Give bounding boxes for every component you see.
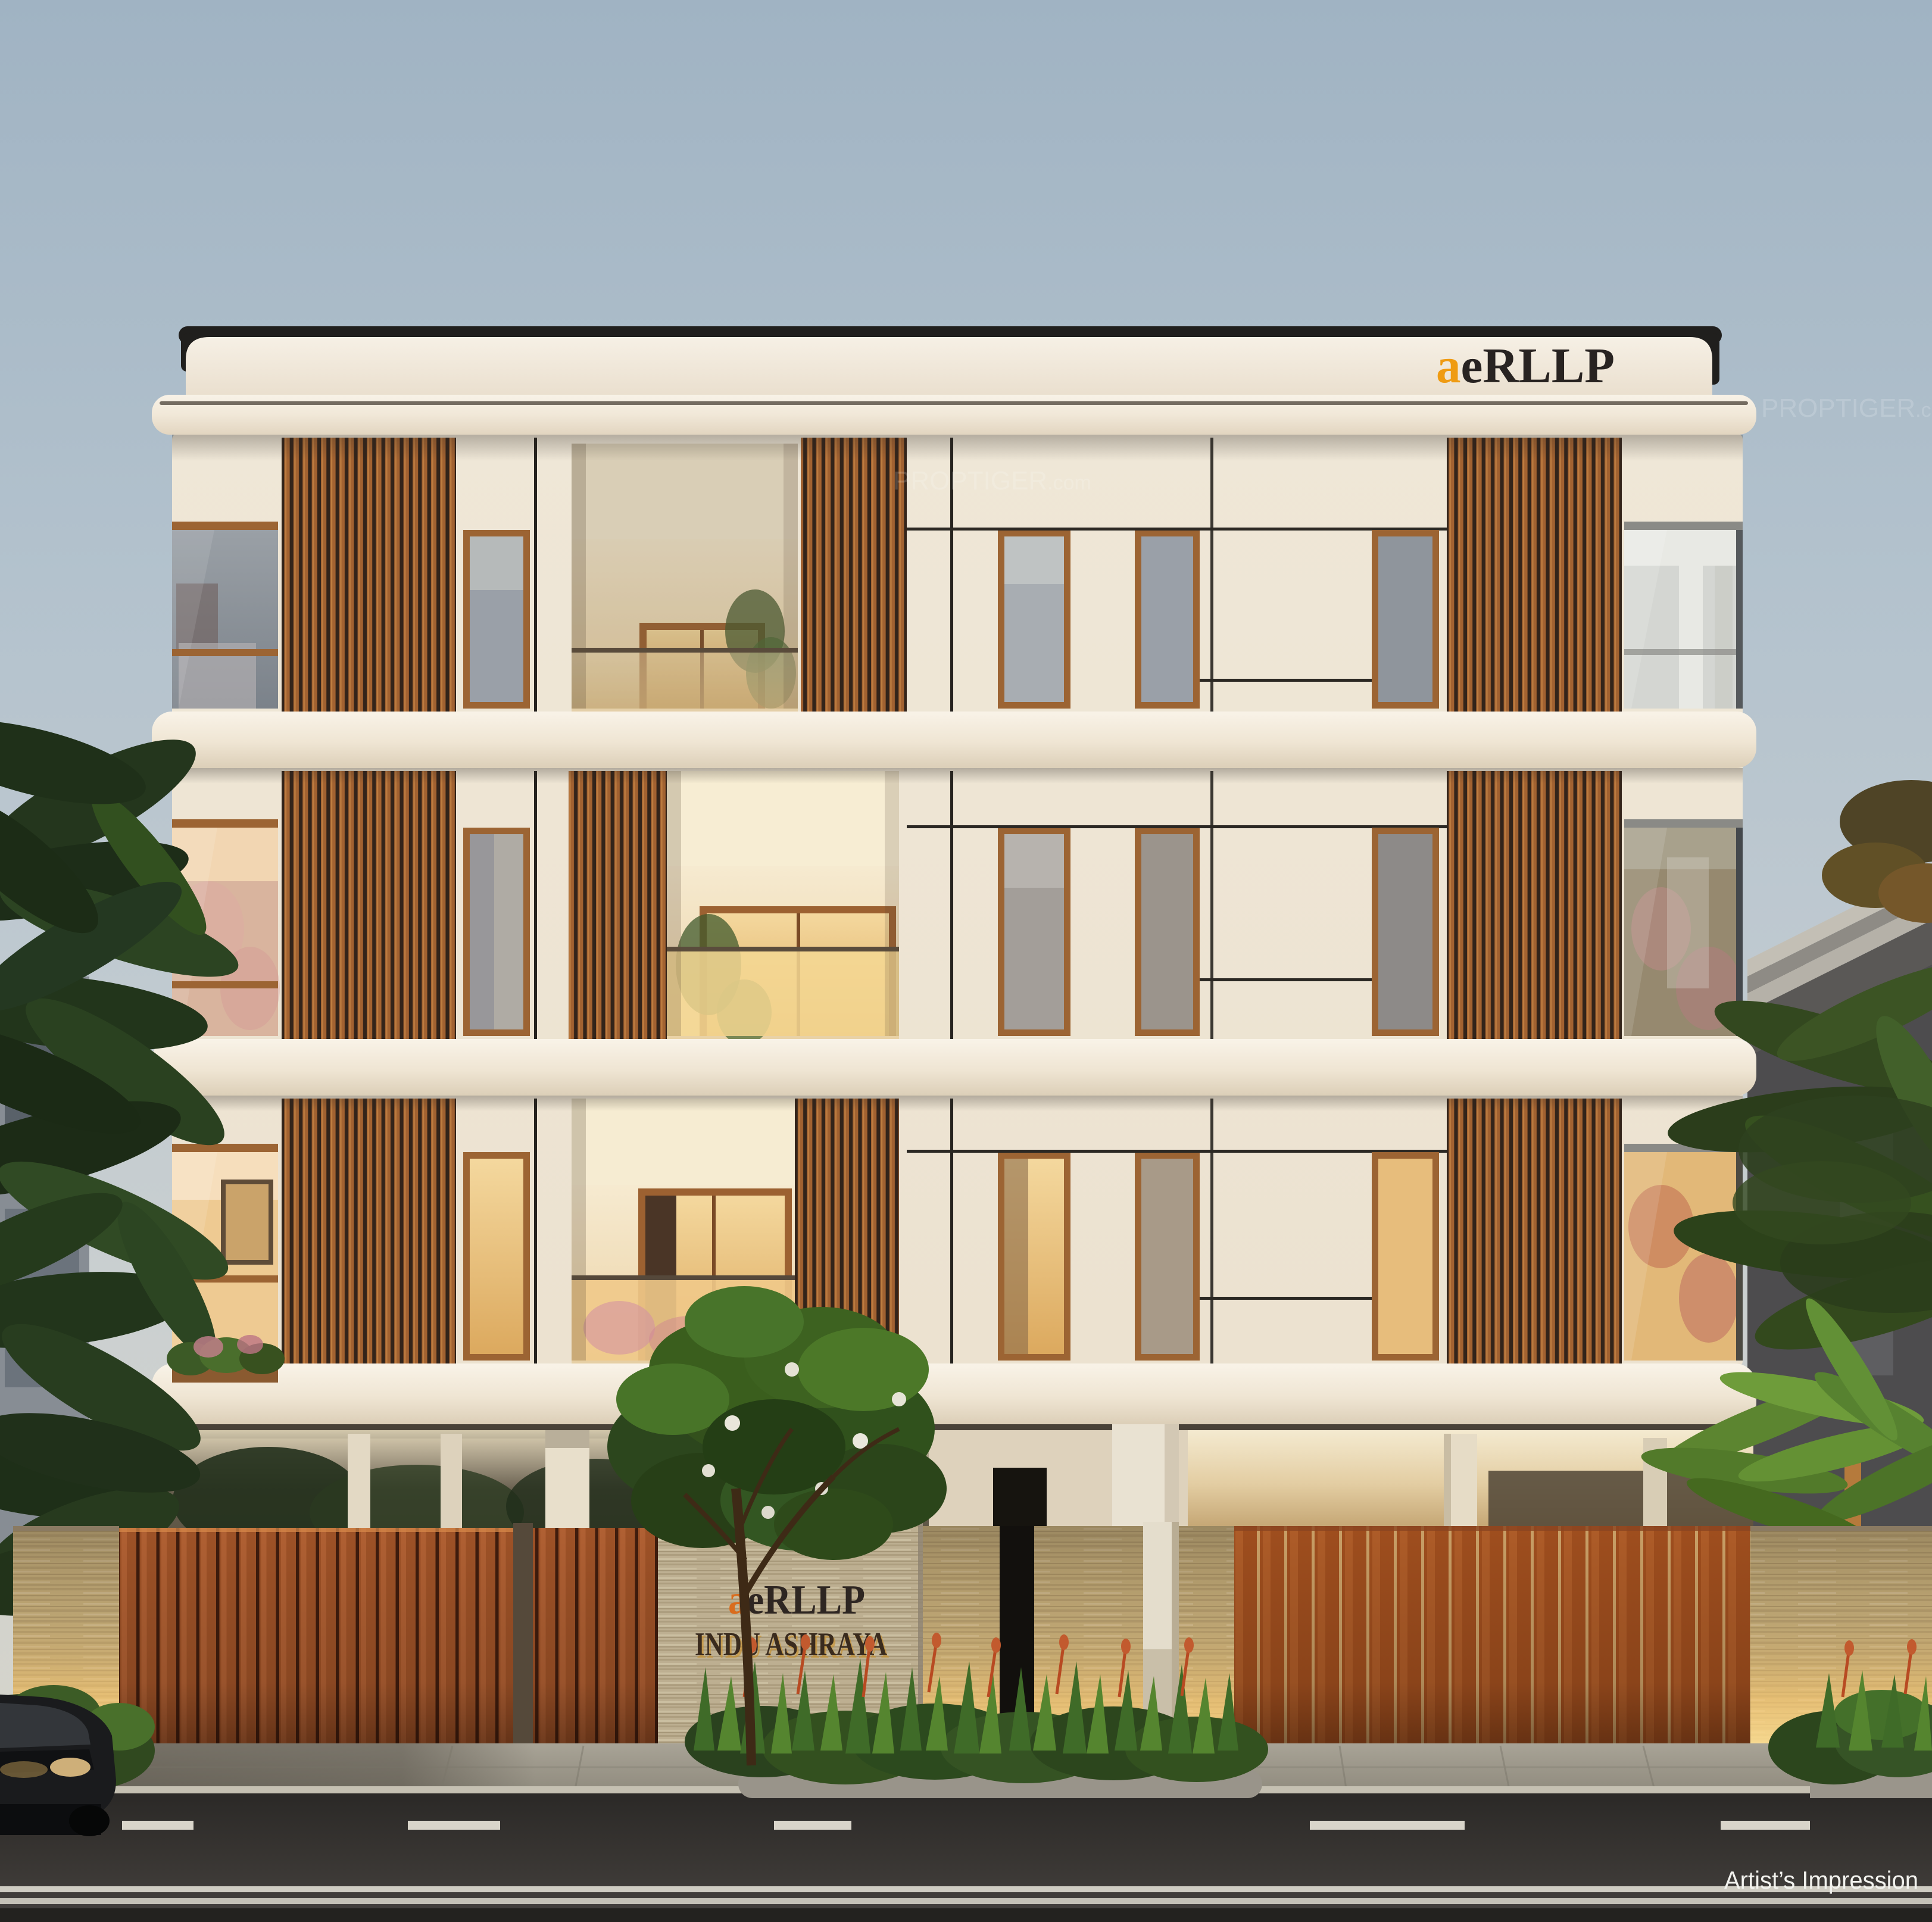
svg-text:PROPTIGER.com: PROPTIGER.com xyxy=(1761,394,1932,423)
svg-text:INDU ASHRAYA: INDU ASHRAYA xyxy=(695,1626,887,1663)
svg-text:aeRLLP: aeRLLP xyxy=(1436,338,1615,394)
svg-text:Artist’s Impression: Artist’s Impression xyxy=(1724,1866,1918,1894)
